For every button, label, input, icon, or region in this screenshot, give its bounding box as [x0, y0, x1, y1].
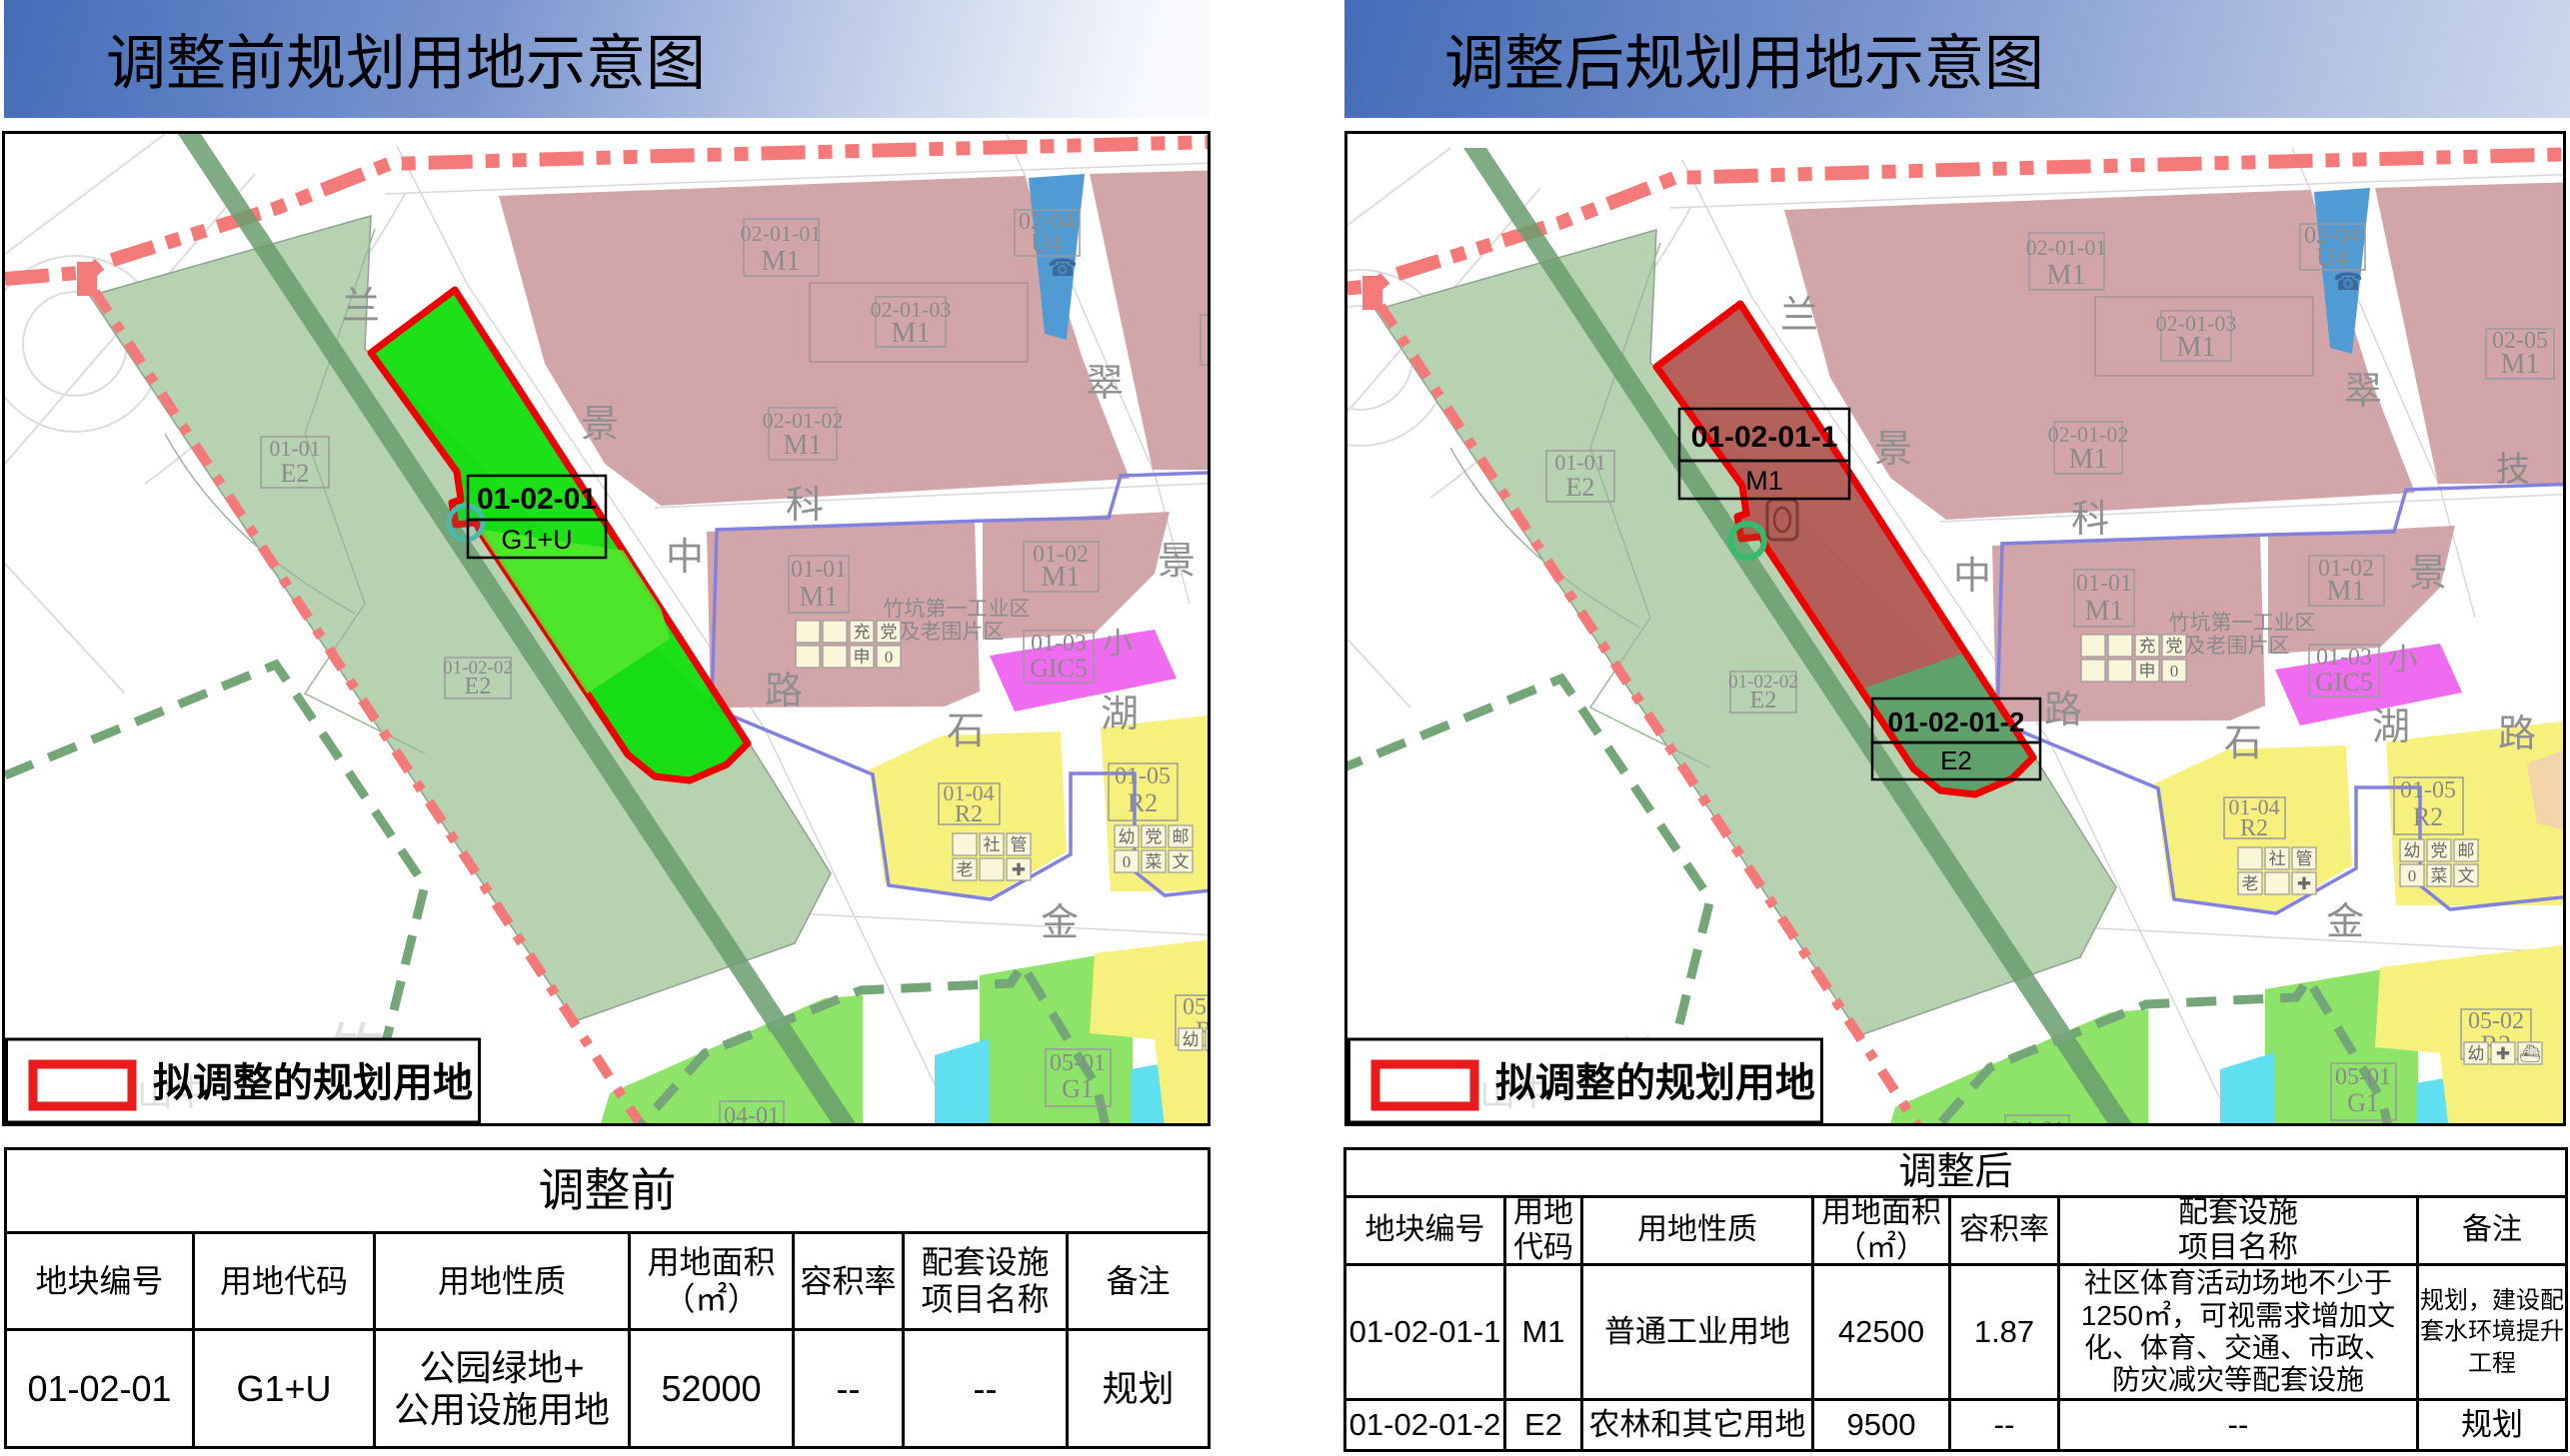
svg-text:路: 路: [2498, 714, 2536, 755]
svg-text:翠: 翠: [2344, 371, 2382, 413]
svg-text:湖: 湖: [2372, 707, 2410, 748]
svg-text:科: 科: [786, 485, 824, 527]
svg-text:景: 景: [2409, 553, 2447, 595]
svg-text:E2: E2: [1940, 745, 1972, 775]
svg-text:小: 小: [2388, 644, 2418, 677]
svg-text:石: 石: [2224, 723, 2262, 764]
svg-text:中: 中: [666, 537, 704, 579]
svg-text:中: 中: [1953, 556, 1991, 598]
svg-text:M1: M1: [1745, 466, 1783, 496]
svg-text:路: 路: [765, 671, 803, 713]
svg-text:01-02-01-2: 01-02-01-2: [1888, 707, 2025, 737]
svg-text:G1+U: G1+U: [501, 525, 572, 555]
svg-text:金: 金: [2326, 901, 2364, 943]
svg-text:翠: 翠: [1086, 363, 1124, 405]
svg-text:景: 景: [1158, 541, 1196, 583]
svg-text:01-02-01: 01-02-01: [477, 483, 597, 516]
svg-text:金: 金: [1041, 902, 1079, 944]
svg-text:兰: 兰: [1780, 295, 1818, 337]
svg-text:景: 景: [1874, 429, 1912, 471]
svg-text:小: 小: [1103, 628, 1133, 661]
svg-text:路: 路: [2044, 690, 2082, 731]
svg-text:科: 科: [2071, 499, 2109, 541]
svg-text:湖: 湖: [1101, 694, 1139, 735]
svg-text:石: 石: [947, 711, 985, 752]
svg-text:兰: 兰: [342, 286, 380, 328]
svg-text:01-02-01-1: 01-02-01-1: [1691, 421, 1838, 454]
svg-text:景: 景: [581, 404, 619, 446]
